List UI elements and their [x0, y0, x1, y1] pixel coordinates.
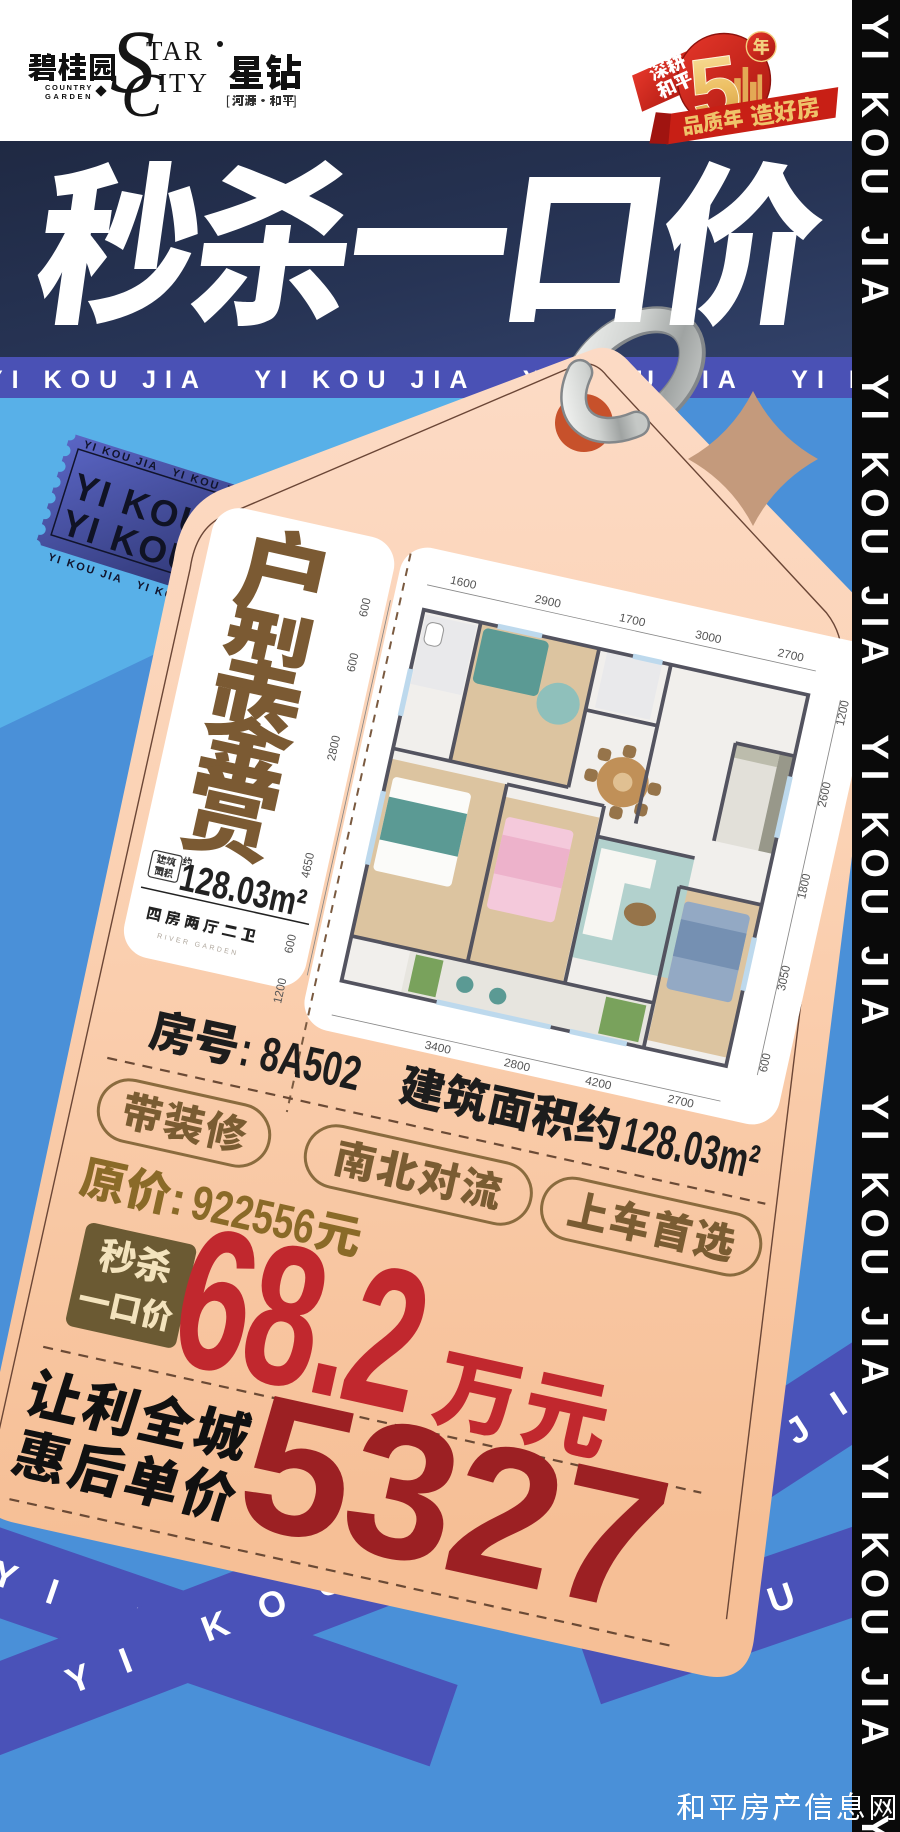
- svg-text:[: [: [226, 93, 230, 108]
- svg-text:COUNTRY: COUNTRY: [45, 83, 93, 92]
- svg-text:C: C: [121, 62, 163, 130]
- svg-text:YI KOU JIA YI KOU JIA YI K: YI KOU JIA YI KOU JIA YI KOU JIA YI KO: [0, 366, 900, 394]
- svg-text:GARDEN: GARDEN: [45, 92, 93, 101]
- svg-text:TAR: TAR: [146, 36, 204, 66]
- svg-text:ITY: ITY: [158, 68, 209, 98]
- svg-text:]: ]: [293, 93, 297, 108]
- svg-text:YI KOU JIA YI KOU JIA YI K: YI KOU JIA YI KOU JIA YI KOU JIA YI KOU …: [853, 14, 895, 1832]
